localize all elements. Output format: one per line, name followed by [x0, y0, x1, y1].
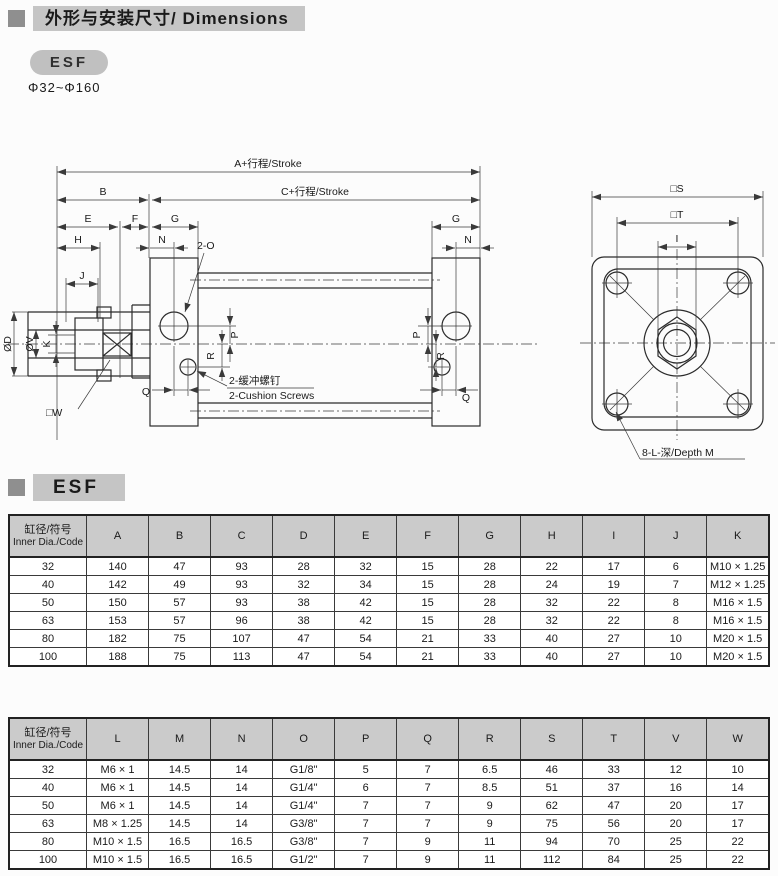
row-code: 40	[9, 779, 87, 797]
row-code: 50	[9, 594, 87, 612]
table-cell: 24	[521, 576, 583, 594]
table-cell: M20 × 1.5	[707, 648, 769, 667]
table-cell: 46	[521, 760, 583, 779]
table-cell: 32	[273, 576, 335, 594]
table-cell: 21	[397, 630, 459, 648]
dim-label-q-right: Q	[462, 392, 470, 404]
col-header-h: H	[521, 515, 583, 557]
table-cell: G3/8"	[273, 833, 335, 851]
cushion-screws-label-cn: 2-缓冲螺钉	[229, 374, 281, 387]
table-cell: 93	[211, 576, 273, 594]
table-cell: 28	[459, 557, 521, 576]
table-row: 63M8 × 1.2514.514G3/8"77975562017	[9, 815, 769, 833]
col-header-o: O	[273, 718, 335, 760]
dim-label-c-stroke: C+行程/Stroke	[281, 185, 349, 198]
dim-label-n-left: N	[158, 234, 166, 246]
dim-label-ports: 2-O	[197, 240, 215, 252]
table-row: 100M10 × 1.516.516.5G1/2"7911112842522	[9, 851, 769, 870]
table-cell: 37	[583, 779, 645, 797]
table-cell: 6	[645, 557, 707, 576]
table-cell: 20	[645, 815, 707, 833]
table-cell: M16 × 1.5	[707, 612, 769, 630]
table-cell: 7	[397, 760, 459, 779]
table-cell: 7	[397, 815, 459, 833]
table-cell: 8.5	[459, 779, 521, 797]
row-code: 50	[9, 797, 87, 815]
table-cell: 14.5	[149, 815, 211, 833]
col-header-i: I	[583, 515, 645, 557]
table-cell: 15	[397, 557, 459, 576]
table-cell: 16.5	[211, 851, 273, 870]
dim-label-n-right: N	[464, 234, 472, 246]
table-cell: 7	[397, 779, 459, 797]
table-cell: 7	[335, 797, 397, 815]
table-cell: 16.5	[149, 851, 211, 870]
table-cell: 7	[335, 833, 397, 851]
table-cell: M10 × 1.5	[87, 851, 149, 870]
dim-label-s: □S	[670, 183, 683, 195]
table-cell: 94	[521, 833, 583, 851]
table-cell: 14.5	[149, 797, 211, 815]
table-cell: 93	[211, 594, 273, 612]
table-cell: 22	[583, 612, 645, 630]
table-cell: 22	[583, 594, 645, 612]
table-cell: 112	[521, 851, 583, 870]
table-cell: 38	[273, 612, 335, 630]
row-code: 100	[9, 851, 87, 870]
col-header-j: J	[645, 515, 707, 557]
table-cell: 70	[583, 833, 645, 851]
table-cell: 10	[707, 760, 769, 779]
model-badge: ESF	[30, 50, 108, 75]
col-header-d: D	[273, 515, 335, 557]
row-code: 63	[9, 612, 87, 630]
col-header-g: G	[459, 515, 521, 557]
dim-label-f: F	[132, 213, 138, 225]
table-cell: 14	[211, 815, 273, 833]
table-cell: 6.5	[459, 760, 521, 779]
col-header-c: C	[211, 515, 273, 557]
table-cell: 21	[397, 648, 459, 667]
table-cell: 113	[211, 648, 273, 667]
row-code: 80	[9, 833, 87, 851]
table-cell: 107	[211, 630, 273, 648]
table-cell: 17	[707, 815, 769, 833]
table-cell: M10 × 1.25	[707, 557, 769, 576]
table-cell: M20 × 1.5	[707, 630, 769, 648]
table-row: 50M6 × 114.514G1/4"77962472017	[9, 797, 769, 815]
catalog-page: 外形与安装尺寸/ Dimensions ESF Φ32~Φ160	[0, 0, 778, 876]
table-cell: 57	[149, 612, 211, 630]
table-cell: 47	[273, 630, 335, 648]
table-cell: M6 × 1	[87, 779, 149, 797]
dim-label-i: I	[676, 233, 679, 245]
table-cell: 40	[521, 630, 583, 648]
table-cell: 9	[397, 833, 459, 851]
table-cell: 57	[149, 594, 211, 612]
dim-label-g-right: G	[452, 213, 460, 225]
table-cell: G1/8"	[273, 760, 335, 779]
table-cell: 51	[521, 779, 583, 797]
table-row: 6315357963842152832228M16 × 1.5	[9, 612, 769, 630]
row-code: 80	[9, 630, 87, 648]
table-cell: 28	[273, 557, 335, 576]
table-cell: 153	[87, 612, 149, 630]
table-cell: 56	[583, 815, 645, 833]
col-header-n: N	[211, 718, 273, 760]
table-cell: 16.5	[149, 833, 211, 851]
table-cell: 22	[521, 557, 583, 576]
table-cell: 25	[645, 851, 707, 870]
col-header-v: V	[645, 718, 707, 760]
table-cell: 16	[645, 779, 707, 797]
table-cell: 7	[645, 576, 707, 594]
technical-drawing: A+行程/Stroke C+行程/Stroke B E F G G H N N …	[0, 150, 778, 470]
table-cell: G1/4"	[273, 797, 335, 815]
dim-label-r-right: R	[435, 352, 447, 360]
dim-label-a-stroke: A+行程/Stroke	[234, 157, 302, 170]
col-header-en: Inner Dia./Code	[10, 537, 86, 549]
col-header-l: L	[87, 718, 149, 760]
table-cell: 62	[521, 797, 583, 815]
dim-label-p-right: P	[411, 331, 423, 338]
col-header-p: P	[335, 718, 397, 760]
table-cell: 42	[335, 594, 397, 612]
section-bullet-icon	[8, 10, 25, 27]
table-row: 801827510747542133402710M20 × 1.5	[9, 630, 769, 648]
table-row: 32M6 × 114.514G1/8"576.546331210	[9, 760, 769, 779]
col-header-e: E	[335, 515, 397, 557]
table-cell: 84	[583, 851, 645, 870]
table-cell: M8 × 1.25	[87, 815, 149, 833]
table-cell: 54	[335, 630, 397, 648]
table-cell: 54	[335, 648, 397, 667]
table-cell: 140	[87, 557, 149, 576]
col-header-k: K	[707, 515, 769, 557]
table-cell: 14	[211, 779, 273, 797]
table-cell: 14.5	[149, 779, 211, 797]
table-cell: 28	[459, 612, 521, 630]
row-code: 100	[9, 648, 87, 667]
table-cell: M16 × 1.5	[707, 594, 769, 612]
table-cell: 22	[707, 833, 769, 851]
table-cell: 33	[459, 648, 521, 667]
table-cell: 188	[87, 648, 149, 667]
table-cell: 47	[149, 557, 211, 576]
table-cell: 7	[397, 797, 459, 815]
table-cell: 182	[87, 630, 149, 648]
table-cell: 25	[645, 833, 707, 851]
table-cell: 34	[335, 576, 397, 594]
dim-label-h: H	[74, 234, 82, 246]
table-cell: 47	[273, 648, 335, 667]
col-header-a: A	[87, 515, 149, 557]
col-header-q: Q	[397, 718, 459, 760]
table-cell: 47	[583, 797, 645, 815]
table-header-row: 缸径/符号Inner Dia./CodeABCDEFGHIJK	[9, 515, 769, 557]
table-row: 80M10 × 1.516.516.5G3/8"791194702522	[9, 833, 769, 851]
table-cell: 32	[521, 612, 583, 630]
table-row: 5015057933842152832228M16 × 1.5	[9, 594, 769, 612]
dimension-table-2: 缸径/符号Inner Dia./CodeLMNOPQRSTVW 32M6 × 1…	[8, 717, 770, 870]
table-cell: 14.5	[149, 760, 211, 779]
table-cell: 32	[521, 594, 583, 612]
table-cell: M6 × 1	[87, 760, 149, 779]
page-title: 外形与安装尺寸/ Dimensions	[33, 6, 305, 31]
dimension-table-1: 缸径/符号Inner Dia./CodeABCDEFGHIJK 32140479…	[8, 514, 770, 667]
table-cell: 27	[583, 630, 645, 648]
table-cell: 75	[521, 815, 583, 833]
table-row: 4014249933234152824197M12 × 1.25	[9, 576, 769, 594]
dim-label-ov: ØV	[24, 336, 36, 351]
table-cell: 6	[335, 779, 397, 797]
col-header-f: F	[397, 515, 459, 557]
table-cell: M6 × 1	[87, 797, 149, 815]
dim-label-k: K	[41, 340, 53, 347]
section-title: ESF	[33, 474, 125, 501]
table-cell: 49	[149, 576, 211, 594]
col-header-m: M	[149, 718, 211, 760]
table-cell: 17	[583, 557, 645, 576]
table-cell: 15	[397, 576, 459, 594]
table-cell: 7	[335, 851, 397, 870]
table-cell: M10 × 1.5	[87, 833, 149, 851]
table-cell: 40	[521, 648, 583, 667]
dim-label-q-left: Q	[142, 386, 150, 398]
table-cell: 75	[149, 648, 211, 667]
table-cell: 9	[459, 797, 521, 815]
cushion-screws-label-en: 2-Cushion Screws	[229, 390, 314, 402]
dim-label-w: □W	[46, 407, 62, 419]
table-cell: G1/4"	[273, 779, 335, 797]
table-cell: 15	[397, 612, 459, 630]
table-cell: G1/2"	[273, 851, 335, 870]
table-cell: 150	[87, 594, 149, 612]
row-code: 40	[9, 576, 87, 594]
table-cell: 96	[211, 612, 273, 630]
table-row: 1001887511347542133402710M20 × 1.5	[9, 648, 769, 667]
table-row: 40M6 × 114.514G1/4"678.551371614	[9, 779, 769, 797]
table-cell: 33	[459, 630, 521, 648]
col-header-r: R	[459, 718, 521, 760]
col-header-en: Inner Dia./Code	[10, 740, 86, 752]
table-cell: 27	[583, 648, 645, 667]
row-code: 32	[9, 557, 87, 576]
table-header-row: 缸径/符号Inner Dia./CodeLMNOPQRSTVW	[9, 718, 769, 760]
dim-label-j: J	[79, 270, 84, 282]
table-cell: 19	[583, 576, 645, 594]
table-cell: 32	[335, 557, 397, 576]
table-cell: 9	[397, 851, 459, 870]
table-cell: 28	[459, 576, 521, 594]
table-cell: 16.5	[211, 833, 273, 851]
table-cell: 142	[87, 576, 149, 594]
col-header-b: B	[149, 515, 211, 557]
side-view: A+行程/Stroke C+行程/Stroke B E F G G H N N …	[2, 157, 540, 440]
table-cell: 17	[707, 797, 769, 815]
table-cell: 75	[149, 630, 211, 648]
col-header-cn: 缸径/符号	[10, 726, 86, 740]
table-cell: 5	[335, 760, 397, 779]
dim-label-p-left: P	[229, 331, 241, 338]
table-cell: 28	[459, 594, 521, 612]
table-cell: 10	[645, 648, 707, 667]
dim-label-g-left: G	[171, 213, 179, 225]
dim-label-r-left: R	[205, 352, 217, 360]
col-header-s: S	[521, 718, 583, 760]
table-cell: 12	[645, 760, 707, 779]
table-cell: 93	[211, 557, 273, 576]
dim-label-b: B	[99, 186, 106, 198]
table-cell: 14	[211, 760, 273, 779]
col-header-t: T	[583, 718, 645, 760]
table-cell: 9	[459, 815, 521, 833]
table-cell: 8	[645, 594, 707, 612]
table-cell: 38	[273, 594, 335, 612]
table-cell: 8	[645, 612, 707, 630]
table-cell: 11	[459, 833, 521, 851]
col-header-cn: 缸径/符号	[10, 523, 86, 537]
flange-end-view: □S □T I 8-L-深/Depth M	[580, 183, 775, 459]
row-code: 63	[9, 815, 87, 833]
depth-annotation-label: 8-L-深/Depth M	[642, 447, 714, 459]
table-cell: M12 × 1.25	[707, 576, 769, 594]
col-header-inner-dia: 缸径/符号Inner Dia./Code	[9, 515, 87, 557]
table-cell: 42	[335, 612, 397, 630]
dim-label-od: ØD	[2, 336, 14, 352]
table-cell: 10	[645, 630, 707, 648]
dim-label-e: E	[84, 213, 91, 225]
bore-range-label: Φ32~Φ160	[28, 80, 101, 95]
table-cell: 11	[459, 851, 521, 870]
table-cell: 33	[583, 760, 645, 779]
table-cell: 14	[707, 779, 769, 797]
table-row: 3214047932832152822176M10 × 1.25	[9, 557, 769, 576]
table-cell: 15	[397, 594, 459, 612]
table-cell: 20	[645, 797, 707, 815]
table-cell: 14	[211, 797, 273, 815]
table-cell: G3/8"	[273, 815, 335, 833]
table-cell: 7	[335, 815, 397, 833]
col-header-inner-dia: 缸径/符号Inner Dia./Code	[9, 718, 87, 760]
table-cell: 22	[707, 851, 769, 870]
dim-label-t: □T	[671, 209, 684, 221]
section-bullet-icon	[8, 479, 25, 496]
row-code: 32	[9, 760, 87, 779]
col-header-w: W	[707, 718, 769, 760]
